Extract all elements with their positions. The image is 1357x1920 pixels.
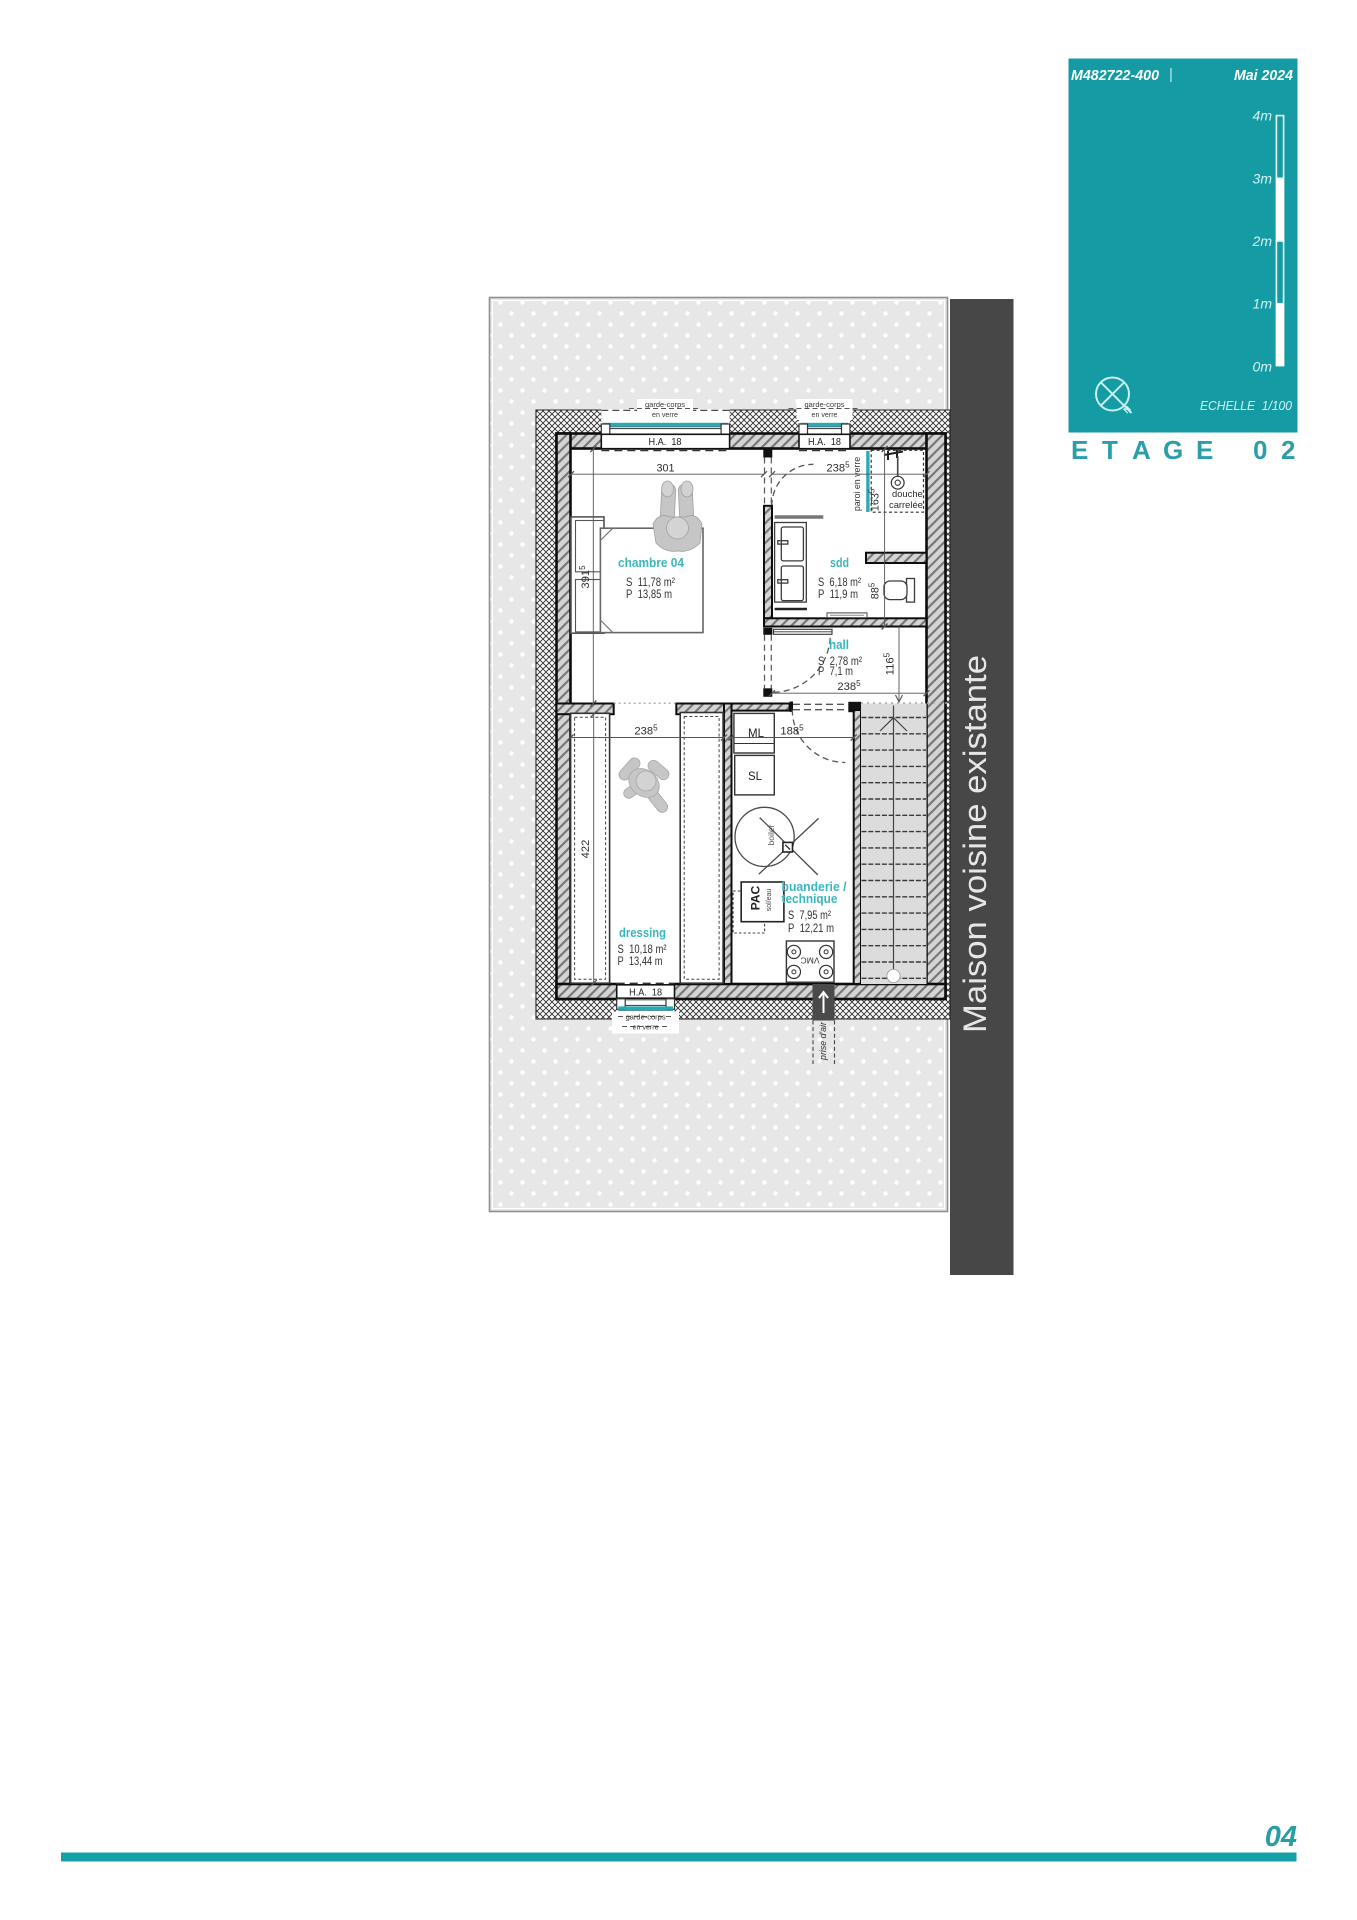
- svg-text:carrelée: carrelée: [889, 499, 923, 510]
- svg-text:T: T: [1102, 435, 1118, 465]
- svg-text:G: G: [1163, 435, 1183, 465]
- svg-text:Mai 2024: Mai 2024: [1234, 67, 1294, 84]
- svg-text:A: A: [1132, 435, 1151, 465]
- svg-text:en verre: en verre: [633, 1023, 659, 1032]
- svg-text:P 7,1 m: P 7,1 m: [818, 664, 853, 678]
- svg-text:0: 0: [1253, 435, 1267, 465]
- svg-text:H.A. 18: H.A. 18: [808, 437, 841, 448]
- svg-text:boiler: boiler: [766, 824, 776, 845]
- svg-text:0m: 0m: [1253, 358, 1273, 374]
- svg-text:M482722-400: M482722-400: [1071, 67, 1160, 84]
- svg-text:E: E: [1071, 435, 1088, 465]
- svg-text:garde-corps: garde-corps: [805, 400, 845, 409]
- svg-text:Maison voisine existante: Maison voisine existante: [957, 655, 993, 1033]
- svg-text:en verre: en verre: [652, 410, 678, 419]
- svg-text:hall: hall: [829, 637, 849, 652]
- svg-text:P 13,85 m: P 13,85 m: [626, 587, 672, 601]
- svg-text:2: 2: [1281, 435, 1295, 465]
- svg-text:dressing: dressing: [619, 925, 666, 940]
- svg-text:P 12,21 m: P 12,21 m: [788, 921, 834, 935]
- svg-text:VMC: VMC: [800, 956, 819, 966]
- svg-text:SL: SL: [748, 771, 763, 783]
- svg-text:sol/eau: sol/eau: [766, 889, 773, 912]
- svg-text:garde-corps: garde-corps: [626, 1013, 666, 1022]
- svg-text:ECHELLE 1/100: ECHELLE 1/100: [1200, 398, 1293, 413]
- svg-text:technique: technique: [782, 891, 838, 906]
- svg-text:H.A. 18: H.A. 18: [629, 988, 662, 999]
- svg-text:04: 04: [1265, 1821, 1297, 1853]
- svg-text:garde-corps: garde-corps: [645, 400, 685, 409]
- svg-text:1m: 1m: [1253, 296, 1273, 312]
- svg-text:prise d'air: prise d'air: [818, 1021, 828, 1061]
- svg-text:sdd: sdd: [830, 555, 849, 570]
- svg-text:E: E: [1196, 435, 1213, 465]
- svg-text:H.A. 18: H.A. 18: [649, 437, 682, 448]
- svg-text:P 13,44 m: P 13,44 m: [618, 954, 663, 968]
- svg-text:paroi en verre: paroi en verre: [852, 457, 862, 511]
- svg-text:301: 301: [657, 463, 675, 475]
- svg-text:422: 422: [580, 840, 592, 859]
- svg-text:S 7,95 m²: S 7,95 m²: [788, 908, 831, 922]
- svg-text:P 11,9 m: P 11,9 m: [818, 587, 858, 601]
- svg-text:PAC: PAC: [749, 885, 763, 910]
- svg-text:en verre: en verre: [812, 410, 838, 419]
- svg-text:douche: douche: [892, 488, 923, 499]
- svg-text:3m: 3m: [1253, 170, 1273, 186]
- svg-text:|: |: [1169, 66, 1173, 83]
- svg-text:4m: 4m: [1253, 108, 1273, 124]
- svg-text:2m: 2m: [1252, 233, 1273, 249]
- svg-text:chambre 04: chambre 04: [618, 555, 685, 570]
- svg-text:ML: ML: [748, 728, 765, 740]
